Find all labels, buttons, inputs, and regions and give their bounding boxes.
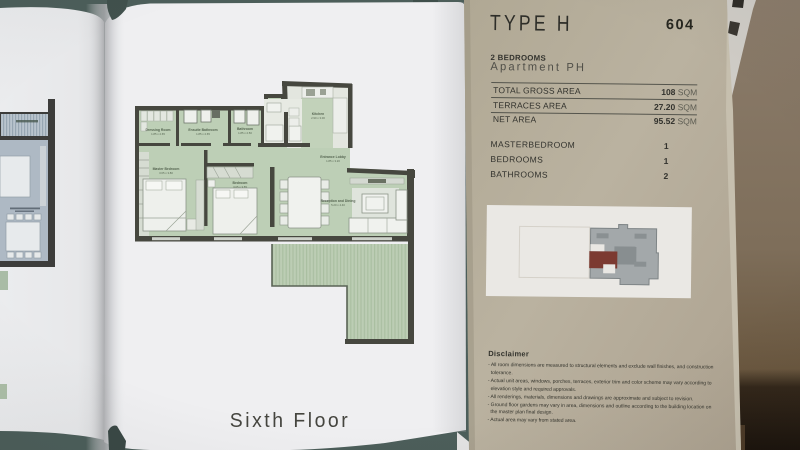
svg-text:1.85 x 2.65: 1.85 x 2.65 (196, 132, 210, 136)
svg-text:1.85 x 3.20: 1.85 x 3.20 (326, 159, 340, 163)
svg-text:3.05 x 3.55: 3.05 x 3.55 (233, 185, 247, 189)
svg-text:2.90 x 3.00: 2.90 x 3.00 (311, 116, 325, 120)
svg-text:3.65 x 3.80: 3.65 x 3.80 (159, 171, 173, 175)
svg-text:1.85 x 2.65: 1.85 x 2.65 (151, 132, 165, 136)
svg-text:1.85 x 2.50: 1.85 x 2.50 (238, 131, 252, 135)
svg-text:5.20 x 4.40: 5.20 x 4.40 (331, 203, 345, 207)
